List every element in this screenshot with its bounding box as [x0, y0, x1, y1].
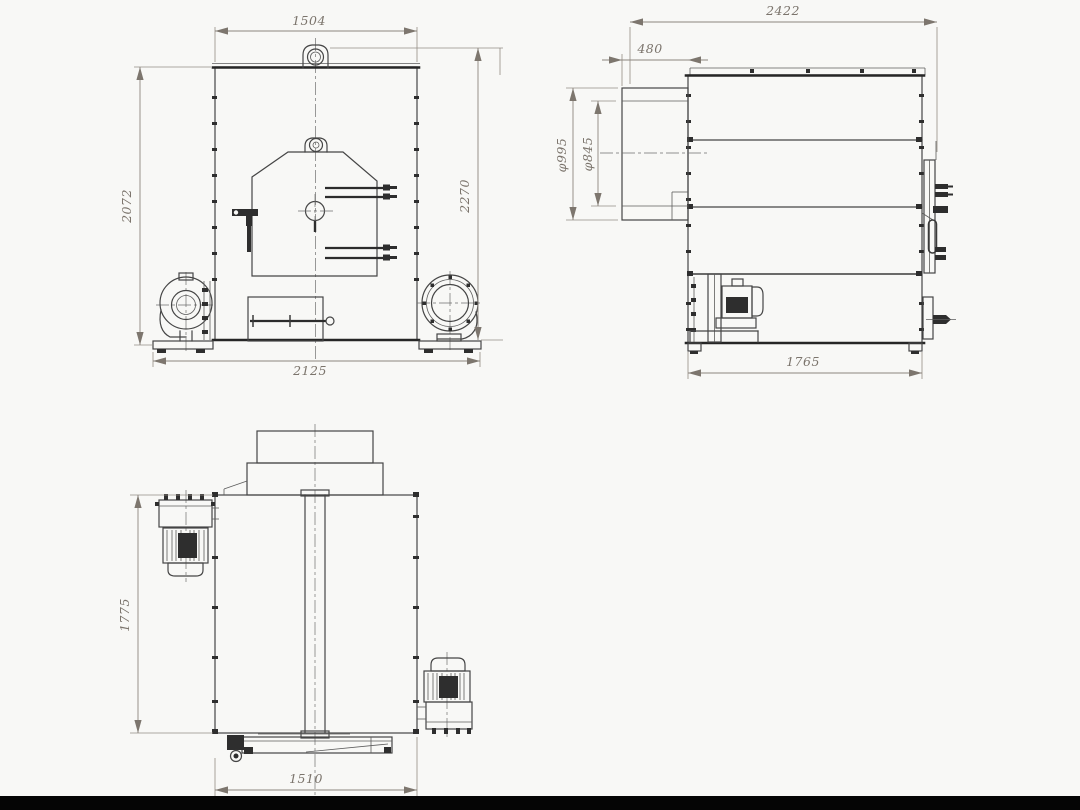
footer-bar	[0, 796, 1080, 810]
base-frame-side	[688, 343, 922, 354]
flue-duct	[600, 88, 708, 220]
dim-side-top-label: 2422	[765, 3, 800, 18]
dim-flue-offset: 480	[602, 41, 708, 86]
dim-front-left-label: 2072	[119, 189, 134, 224]
door-handle	[232, 209, 258, 252]
dim-side-bottom-label: 1765	[786, 354, 820, 369]
furnace-door	[252, 138, 377, 276]
base-frame-front	[153, 341, 481, 353]
door-hinge-hardware	[922, 141, 956, 339]
dim-flue-outer-label: φ995	[554, 138, 569, 173]
dim-front-left: 2072	[119, 67, 211, 345]
rear-view: 1775 1510	[117, 424, 472, 796]
dim-rear-bottom-label: 1510	[289, 771, 323, 786]
ash-box	[248, 297, 334, 341]
dim-front-bottom: 2125	[153, 352, 480, 378]
dim-front-top: 1504	[215, 13, 417, 62]
top-motor-fan	[155, 490, 219, 582]
dim-side-bottom: 1765	[688, 352, 922, 379]
dim-flue-inner-label: φ845	[580, 137, 595, 172]
dim-flue-inner: φ845	[580, 101, 616, 206]
dim-side-top: 2422	[630, 3, 937, 152]
dim-front-right-label: 2270	[457, 179, 472, 214]
bottom-motor-fan	[417, 652, 472, 740]
dim-rear-left-label: 1775	[117, 598, 132, 632]
rear-body	[212, 481, 419, 734]
door-lug	[305, 138, 327, 152]
front-view: 1504 2072 2270 2125	[119, 13, 503, 378]
dim-flue-offset-label: 480	[636, 41, 662, 56]
burner-motor	[690, 274, 763, 342]
door-hinges	[325, 185, 397, 261]
dim-front-top-label: 1504	[292, 13, 326, 28]
dim-front-bottom-label: 2125	[292, 363, 327, 378]
engineering-drawing-canvas: 1504 2072 2270 2125	[0, 0, 1080, 810]
dim-rear-bottom: 1510	[215, 737, 417, 796]
side-view: 2422 480 φ995 φ845 1765	[554, 3, 956, 379]
